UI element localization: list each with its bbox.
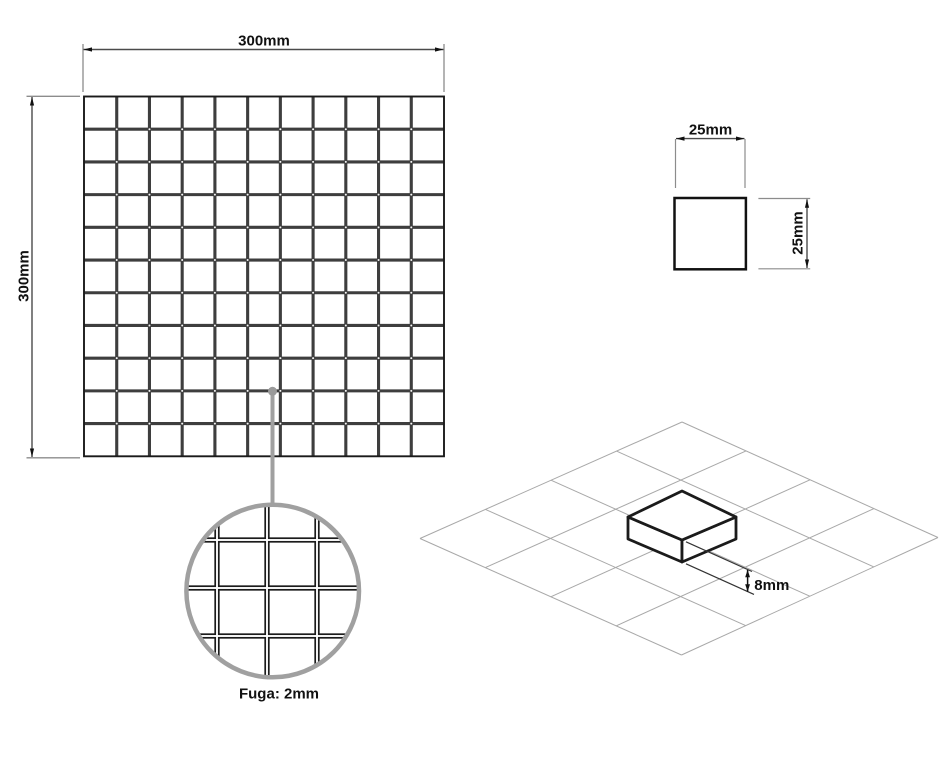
svg-text:Fuga: 2mm: Fuga: 2mm [239, 686, 319, 703]
svg-text:25mm: 25mm [789, 211, 806, 254]
svg-text:25mm: 25mm [689, 121, 732, 138]
svg-text:300mm: 300mm [238, 33, 290, 50]
svg-text:8mm: 8mm [754, 577, 789, 594]
svg-text:300mm: 300mm [16, 250, 33, 302]
